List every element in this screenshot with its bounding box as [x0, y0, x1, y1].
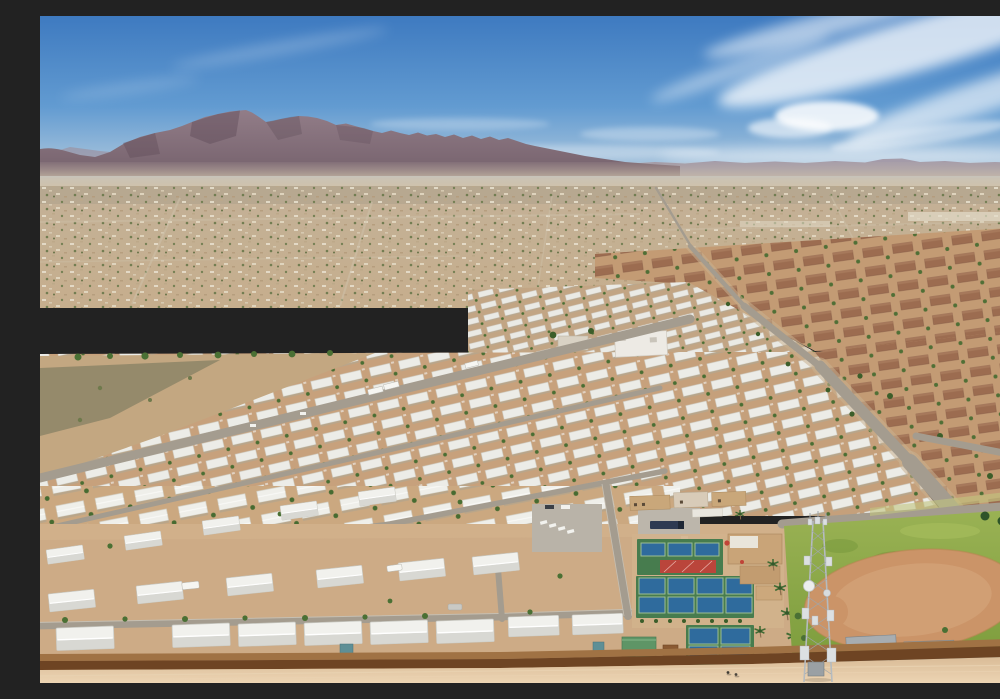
dish-antenna-small — [824, 590, 831, 597]
equipment-cabinet — [808, 662, 824, 676]
upper-courts — [637, 539, 723, 575]
red-umbrella — [740, 560, 744, 564]
mobile-home — [370, 620, 428, 644]
rv-camper — [182, 581, 200, 590]
teal-shed — [340, 644, 353, 654]
aerial-photo — [40, 16, 1000, 683]
mobile-home — [56, 626, 114, 650]
red-umbrella — [724, 540, 729, 545]
mobile-home — [304, 621, 362, 645]
parking-lot-west — [532, 504, 602, 552]
camper — [448, 604, 462, 610]
mobile-home — [508, 615, 559, 637]
dish-antenna — [804, 581, 815, 592]
mobile-home — [572, 613, 623, 635]
mobile-home — [238, 622, 296, 646]
mobile-home — [436, 619, 494, 643]
mobile-home — [172, 623, 230, 647]
semi-truck — [650, 521, 680, 529]
middle-courts — [636, 576, 754, 623]
